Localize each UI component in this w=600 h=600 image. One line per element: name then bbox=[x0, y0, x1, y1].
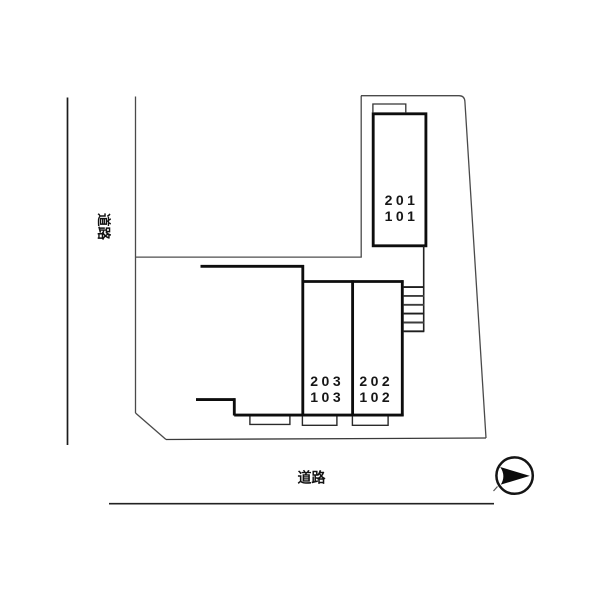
svg-text:101: 101 bbox=[385, 208, 419, 224]
svg-text:203: 203 bbox=[310, 373, 344, 389]
svg-text:102: 102 bbox=[359, 389, 393, 405]
svg-text:103: 103 bbox=[310, 389, 344, 405]
svg-text:202: 202 bbox=[359, 373, 393, 389]
svg-text:201: 201 bbox=[385, 192, 419, 208]
svg-text:道路: 道路 bbox=[298, 470, 327, 486]
svg-text:道路: 道路 bbox=[96, 213, 112, 240]
